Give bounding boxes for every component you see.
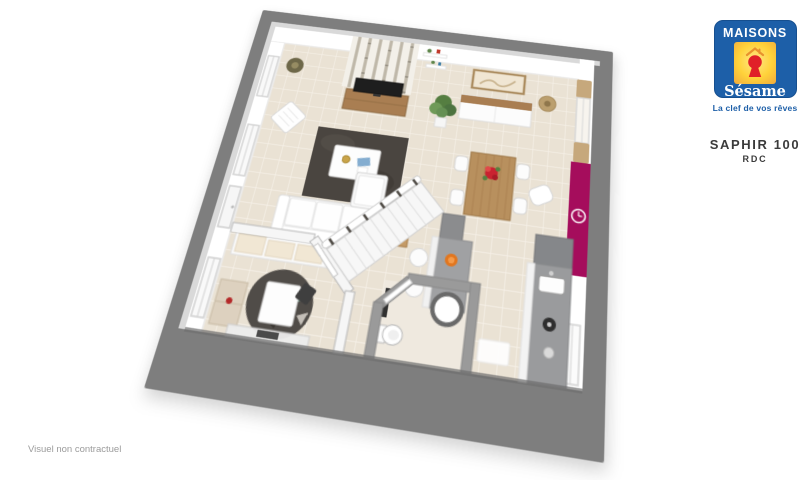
curtain [573,142,590,164]
logo-name-top: MAISONS [715,26,796,40]
sink [538,275,565,295]
page-canvas: MAISONS Sésame La clef de vos rêves SAPH… [0,0,811,480]
disclaimer-text: Visuel non contractuel [28,444,121,455]
brand-block: MAISONS Sésame La clef de vos rêves SAPH… [705,20,805,164]
brand-tagline: La clef de vos rêves [705,103,805,113]
floorplan-svg [144,10,613,463]
fridge-column [534,234,573,268]
keyhole-icon [734,42,776,84]
logo-yellow-square [734,42,776,84]
kitchen-counter [518,262,572,388]
dining-table [463,152,515,221]
floorplan-3d [144,10,613,463]
model-name: SAPHIR 100 [705,137,805,152]
logo-name-script: Sésame [715,84,796,99]
maisons-sesame-logo: MAISONS Sésame [714,20,797,98]
model-floor-label: RDC [705,154,805,164]
curtain [576,79,592,99]
washbasin [430,292,463,327]
window [575,97,590,143]
floor-mat [477,339,510,366]
